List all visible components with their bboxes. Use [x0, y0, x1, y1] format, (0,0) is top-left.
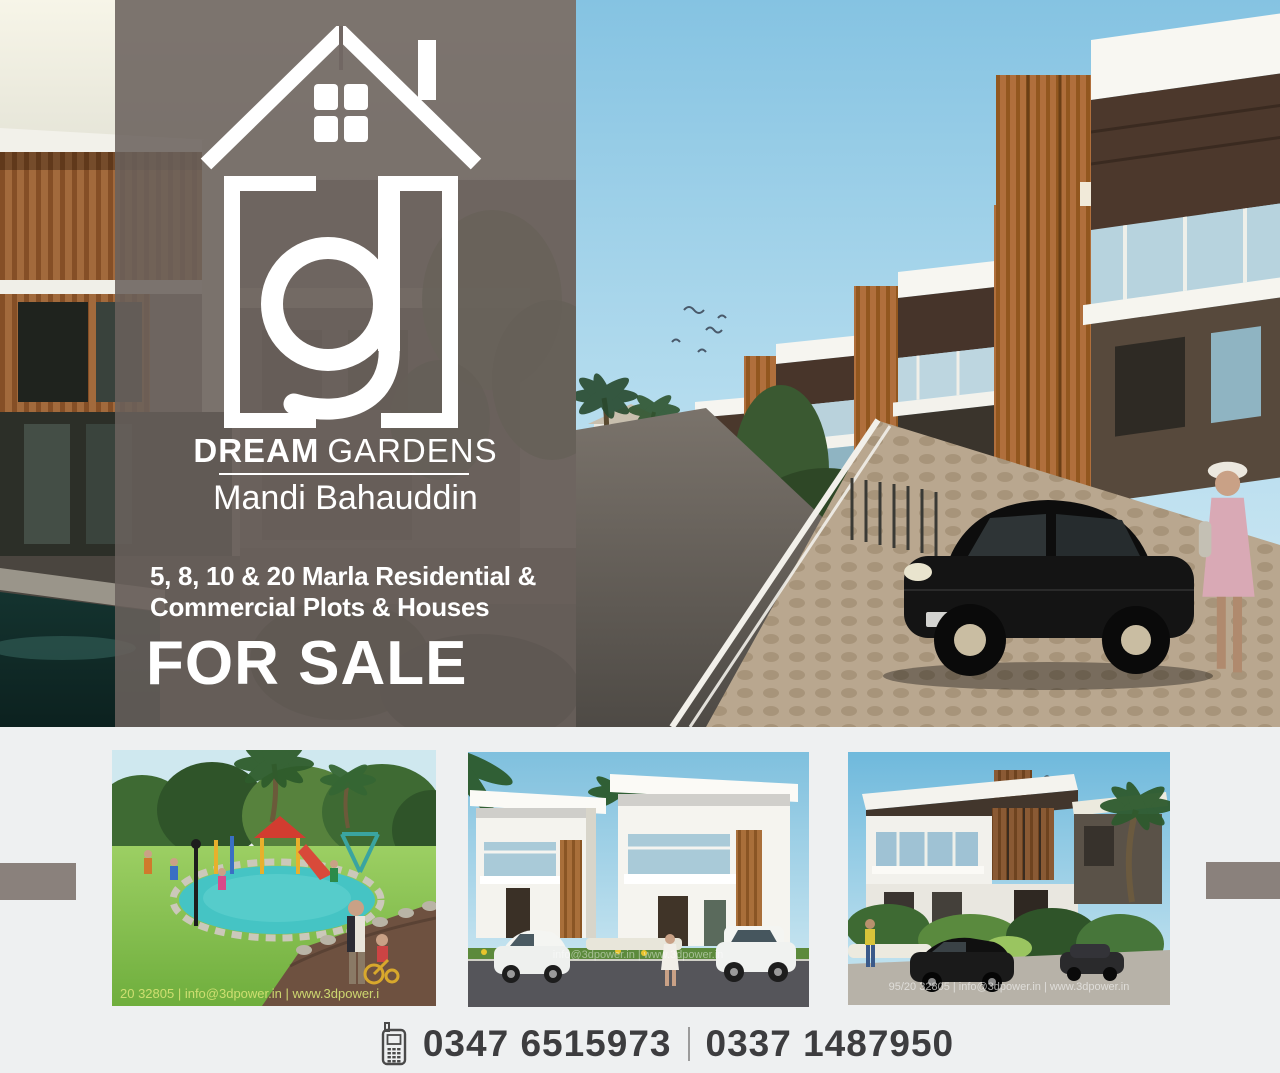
brand-word-gardens: GARDENS	[327, 432, 497, 469]
thumbnail-watermark: info@3dpower.in | www.3dpower.in	[553, 949, 724, 961]
villa-left	[470, 790, 606, 938]
phone-number-1: 0347 6515973	[423, 1023, 672, 1065]
offer-line-1: 5, 8, 10 & 20 Marla Residential &	[150, 561, 536, 592]
hero-section: DREAMGARDENS Mandi Bahauddin 5, 8, 10 & …	[0, 0, 1280, 727]
pedestrian	[865, 919, 875, 967]
brand-word-dream: DREAM	[193, 432, 319, 469]
mobile-phone-icon	[381, 1022, 407, 1066]
street-photo	[576, 0, 1280, 727]
dg-monogram	[272, 176, 400, 409]
villa-right	[610, 774, 798, 946]
for-sale-headline: FOR SALE	[146, 628, 467, 699]
thumbnail-villas: info@3dpower.in | www.3dpower.in	[468, 752, 809, 1007]
thumbnail-playground: 20 32805 | info@3dpower.in | www.3dpower…	[112, 750, 436, 1006]
house-monogram-logo-icon	[196, 26, 486, 436]
brand-overlay-panel: DREAMGARDENS Mandi Bahauddin 5, 8, 10 & …	[115, 0, 576, 727]
thumbnail-watermark: 20 32805 | info@3dpower.in | www.3dpower…	[120, 986, 379, 1001]
thumbnail-watermark: 95/20 32805 | info@3dpower.in | www.3dpo…	[889, 981, 1130, 993]
thumbnail-houses: 95/20 32805 | info@3dpower.in | www.3dpo…	[848, 752, 1170, 1005]
chimney	[418, 40, 436, 100]
brand-underline	[219, 473, 469, 475]
phone-separator	[688, 1027, 690, 1061]
contact-bar: 0347 6515973 0337 1487950	[0, 1018, 1280, 1070]
left-accent-rectangle	[0, 863, 76, 900]
offer-line-2: Commercial Plots & Houses	[150, 592, 536, 623]
offer-text: 5, 8, 10 & 20 Marla Residential & Commer…	[150, 561, 536, 623]
bracket-frame	[224, 176, 458, 428]
right-accent-rectangle	[1206, 862, 1280, 899]
city-subtitle: Mandi Bahauddin	[115, 479, 576, 518]
brand-title: DREAMGARDENS	[115, 432, 576, 470]
flyer-canvas: DREAMGARDENS Mandi Bahauddin 5, 8, 10 & …	[0, 0, 1280, 1073]
phone-number-2: 0337 1487950	[706, 1023, 955, 1065]
window	[314, 84, 368, 142]
